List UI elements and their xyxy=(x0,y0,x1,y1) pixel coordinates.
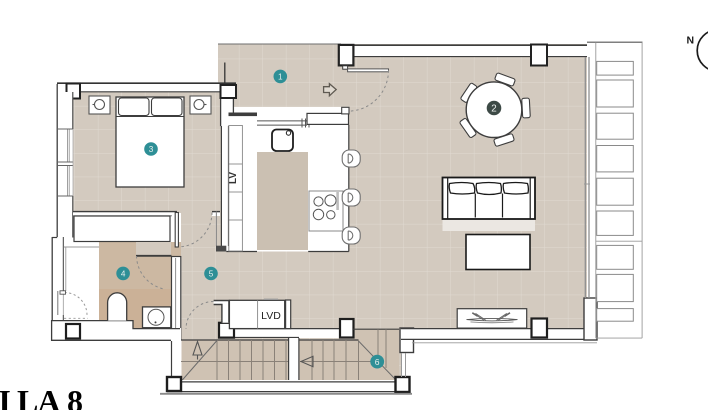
svg-text:8: 8 xyxy=(67,383,83,410)
svg-text:L: L xyxy=(17,383,38,410)
svg-text:4: 4 xyxy=(121,269,126,278)
svg-text:2: 2 xyxy=(491,104,496,115)
svg-text:N: N xyxy=(687,34,695,46)
svg-text:A: A xyxy=(38,383,61,410)
svg-text:6: 6 xyxy=(375,357,380,367)
svg-text:1: 1 xyxy=(278,72,283,81)
svg-text:3: 3 xyxy=(149,145,154,154)
svg-text:LVD: LVD xyxy=(261,310,281,322)
svg-text:5: 5 xyxy=(209,270,214,279)
svg-text:LV: LV xyxy=(228,172,239,184)
svg-text:I: I xyxy=(0,383,11,410)
